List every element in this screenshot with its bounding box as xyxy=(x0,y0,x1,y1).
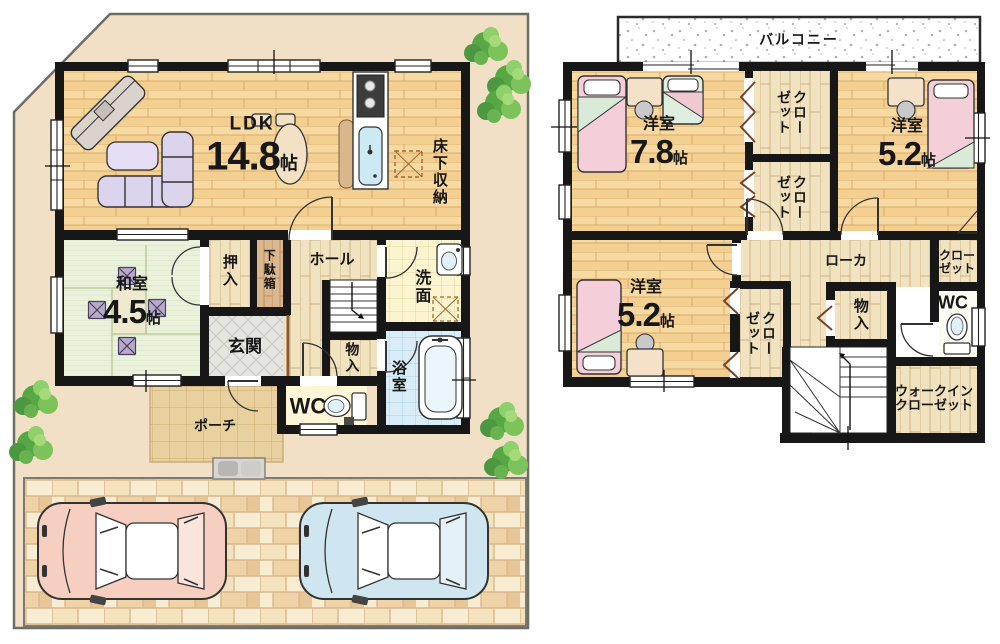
bathtub-icon xyxy=(419,336,462,419)
closet-a-label: クローゼット xyxy=(776,86,808,138)
underfloor-storage-label: 床下収納 xyxy=(431,138,447,206)
car-pink xyxy=(38,496,226,605)
balcony-label: バルコニー xyxy=(759,33,839,48)
washitsu-label: 和室 4.5帖 xyxy=(103,277,161,329)
monoire1-label: 物入 xyxy=(345,342,360,374)
bed4-icon xyxy=(577,280,621,374)
genkan-label: 玄関 xyxy=(228,338,262,356)
bedroom3-label: 洋室 5.2帖 xyxy=(617,280,675,332)
wc1-label: WC xyxy=(290,394,327,417)
oshiire-label: 押入 xyxy=(221,254,237,288)
floorplan-image: LDK 14.8帖 床下収納 押入 下駄箱 ホール 洗面 和室 4.5帖 玄関 … xyxy=(0,0,1000,644)
bedroom1-label: 洋室 7.8帖 xyxy=(630,117,688,169)
car-blue xyxy=(300,496,488,605)
closet-b-label: クローゼット xyxy=(776,171,808,223)
floor2-stairs xyxy=(790,347,887,433)
monoire2-label: 物入 xyxy=(852,298,868,332)
toilet-2f-icon xyxy=(944,314,970,354)
closet-d-label: クローゼット xyxy=(936,249,978,274)
closet-c-label: クローゼット xyxy=(745,307,777,359)
bath-label: 浴室 xyxy=(390,360,406,394)
hall-label: ホール xyxy=(309,252,354,268)
corridor-label: ローカ xyxy=(825,254,867,269)
floor1-stairs xyxy=(330,280,377,332)
walkin-closet-label: ウォークインクローゼット xyxy=(889,384,979,411)
wc2-label: WC xyxy=(938,294,968,313)
ldk-name: LDK xyxy=(229,115,274,135)
ldk-size: 14.8 xyxy=(206,134,280,178)
bed1-icon xyxy=(578,76,626,172)
sink-icon xyxy=(359,127,382,185)
porch-label: ポーチ xyxy=(194,419,236,434)
getabako-label: 下駄箱 xyxy=(263,249,276,291)
bedroom2-label: 洋室 5.2帖 xyxy=(878,119,936,171)
senmen-label: 洗面 xyxy=(412,269,429,305)
ldk-label: LDK 14.8帖 xyxy=(206,115,298,178)
floor2-plan xyxy=(559,17,985,443)
washbasin-icon xyxy=(437,244,462,275)
coffee-table xyxy=(107,142,158,170)
